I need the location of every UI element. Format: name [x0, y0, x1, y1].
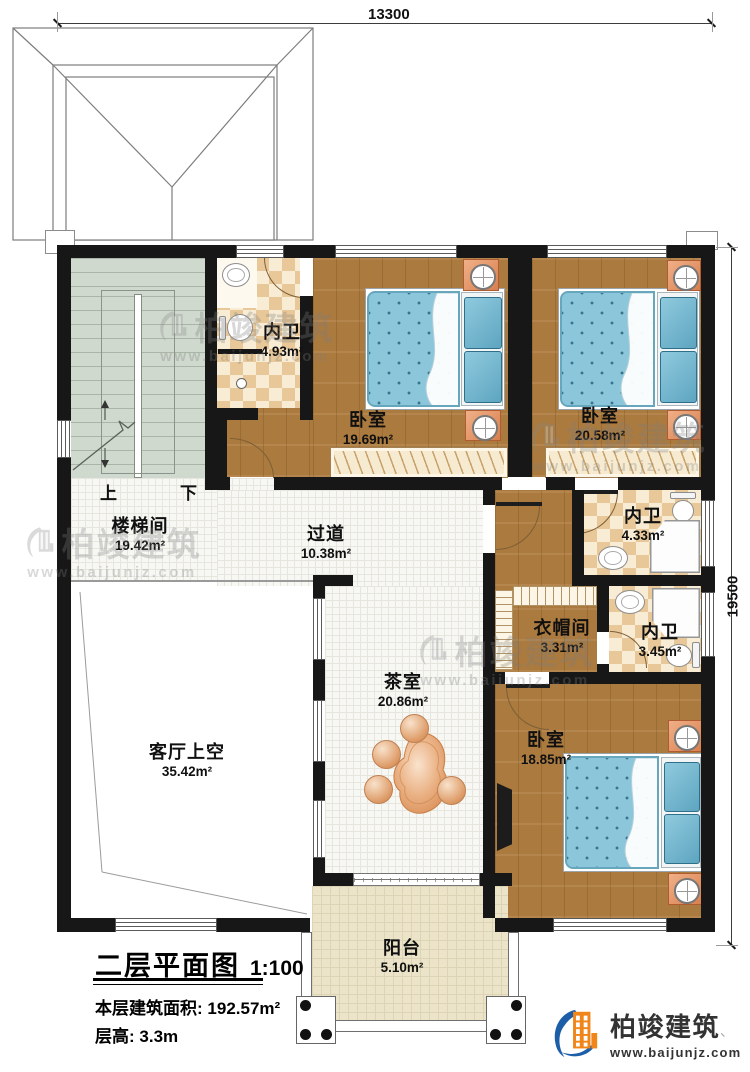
post-dot — [300, 1029, 311, 1040]
bath1-sink — [222, 263, 250, 287]
lamp-icon — [472, 415, 498, 441]
bedroom1-wardrobe — [330, 447, 508, 478]
wall-exterior-left — [57, 245, 71, 932]
lamp-icon — [674, 878, 700, 904]
window-bedroom1 — [335, 245, 457, 258]
roof-plan-drawing — [12, 26, 316, 242]
floor-height-row: 层高: 3.3m — [95, 1022, 178, 1047]
dimension-extension — [712, 12, 713, 32]
room-area: 4.33m² — [593, 528, 693, 544]
window-bath2 — [701, 500, 715, 567]
room-area: 3.45m² — [610, 644, 710, 660]
stair-direction-arrows — [71, 258, 205, 478]
room-area: 4.93m² — [234, 344, 330, 360]
room-label-bedroom2: 卧室 20.58m² — [550, 406, 650, 444]
bedroom1-pillow — [464, 297, 502, 349]
bath1-floor-drain — [236, 378, 247, 389]
stair-down-label: 下 — [180, 479, 197, 504]
wall-closet-south-a — [483, 672, 505, 684]
company-logo: 柏竣建筑、 www.baijunjz.com — [548, 1002, 744, 1064]
post-dot — [300, 1000, 311, 1011]
bedroom3-nightstand-bottom — [668, 873, 702, 905]
room-name: 阳台 — [352, 938, 452, 960]
window-bath1 — [236, 245, 284, 258]
bedroom3-mattress — [565, 756, 659, 869]
bedroom1-mattress — [367, 291, 460, 407]
room-label-bedroom1: 卧室 19.69m² — [318, 410, 418, 448]
post-dot — [511, 1029, 522, 1040]
room-name: 客厅上空 — [130, 742, 244, 764]
room-label-hallway: 过道 10.38m² — [276, 524, 376, 562]
room-label-bedroom3: 卧室 18.85m² — [496, 730, 596, 768]
lamp-icon — [673, 414, 699, 440]
bedroom2-pillow — [660, 351, 697, 403]
plan-title: 二层平面图 — [95, 951, 240, 981]
room-area: 20.86m² — [353, 694, 453, 710]
plan-scale: 1:100 — [250, 957, 304, 980]
bedroom1-nightstand-bottom — [465, 410, 501, 441]
company-name-tick: 、 — [720, 1023, 734, 1039]
room-label-balcony: 阳台 5.10m² — [352, 938, 452, 976]
window-living-void — [115, 918, 217, 932]
wall-tearoom-north-stub — [313, 575, 353, 586]
room-label-closet: 衣帽间 3.31m² — [512, 618, 612, 656]
bath1-toilet-tank — [219, 316, 226, 340]
balcony-sliding-door — [353, 873, 480, 886]
wall-tearoom-south-stub-left — [325, 873, 353, 886]
wall-bedroom1-bedroom2 — [508, 258, 532, 477]
bedroom3-nightstand-top — [668, 720, 702, 752]
dimension-height-label: 19500 — [724, 576, 741, 618]
floor-height-value: 3.3m — [139, 1027, 178, 1046]
bedroom3-pillow — [664, 762, 700, 812]
window-bedroom2 — [547, 245, 667, 258]
building-logo-icon — [23, 525, 57, 559]
room-label-bath3: 内卫 3.45m² — [610, 622, 710, 660]
wall-south-band-b — [274, 477, 502, 490]
room-area: 3.31m² — [512, 640, 612, 656]
bedroom3-pillow — [664, 814, 700, 864]
title-underline — [93, 978, 263, 981]
door-leaf-vestibule — [496, 502, 542, 506]
tea-stool — [437, 776, 466, 805]
room-label-stairhall: 楼梯间 19.42m² — [85, 516, 195, 554]
room-area: 10.38m² — [276, 546, 376, 562]
room-name: 卧室 — [496, 730, 596, 752]
company-website: www.baijunjz.com — [610, 1045, 741, 1060]
room-label-living-void: 客厅上空 35.42m² — [130, 742, 244, 780]
room-area: 35.42m² — [130, 764, 244, 780]
company-logo-text: 柏竣建筑、 www.baijunjz.com — [610, 1007, 741, 1060]
floor-plan-canvas: 13300 19500 上 下 — [0, 0, 750, 1072]
floor-area-value: 192.57m² — [207, 999, 280, 1018]
tea-stool — [400, 714, 429, 743]
dimension-line-top — [57, 23, 712, 24]
floor-area-label: 本层建筑面积: — [95, 999, 203, 1018]
dimension-extension — [716, 945, 738, 946]
bedroom2-pillow — [660, 297, 697, 349]
title-underline-thin — [93, 984, 263, 985]
lamp-icon — [470, 264, 496, 290]
wall-south-band-d — [618, 477, 715, 490]
dimension-width-label: 13300 — [368, 6, 410, 23]
wall-vestibule-west-b — [483, 553, 495, 672]
wall-south-band-a — [205, 477, 230, 490]
door-leaf-bedroom3 — [506, 684, 550, 688]
room-name: 茶室 — [353, 672, 453, 694]
window-tearoom-1 — [313, 598, 325, 660]
room-area: 5.10m² — [352, 960, 452, 976]
wall-bath2-south — [572, 575, 715, 586]
window-tearoom-2 — [313, 700, 325, 762]
bath3-sink — [615, 590, 645, 614]
post-dot — [490, 1029, 501, 1040]
bedroom2-wardrobe — [545, 447, 700, 478]
lamp-icon — [674, 725, 700, 751]
bedroom1-nightstand-top — [463, 259, 499, 291]
window-stairwell — [57, 420, 71, 458]
stair-up-label: 上 — [100, 479, 117, 504]
post-dot — [321, 1029, 332, 1040]
lamp-icon — [673, 265, 699, 291]
dimension-extension — [57, 12, 58, 32]
company-name: 柏竣建筑 — [610, 1012, 720, 1042]
window-bedroom3 — [553, 918, 667, 932]
wall-exterior-right — [701, 245, 715, 932]
room-name: 过道 — [276, 524, 376, 546]
wall-vestibule-west-a — [483, 490, 495, 505]
room-name: 衣帽间 — [512, 618, 612, 640]
bed-curtain — [367, 293, 460, 407]
balcony-post-right — [486, 996, 526, 1044]
floor-height-label: 层高: — [95, 1027, 135, 1046]
room-area: 19.69m² — [318, 432, 418, 448]
wall-south-band-c — [546, 477, 575, 490]
bed-curtain — [560, 293, 655, 407]
balcony-post-left — [296, 996, 336, 1044]
wall-stair-bath1 — [205, 258, 217, 408]
void-railing-line — [71, 580, 313, 582]
wall-bath2-west — [572, 490, 584, 575]
room-name: 内卫 — [593, 506, 693, 528]
bedroom3-tv — [497, 783, 512, 851]
company-logo-icon — [548, 1005, 602, 1061]
bedroom2-nightstand-bottom — [667, 410, 701, 440]
room-name: 楼梯间 — [85, 516, 195, 538]
room-area: 18.85m² — [496, 752, 596, 768]
dimension-extension — [716, 247, 738, 248]
bedroom2-nightstand-top — [667, 260, 701, 291]
tea-stool — [372, 740, 401, 769]
room-name: 内卫 — [234, 322, 330, 344]
room-area: 20.58m² — [550, 428, 650, 444]
room-area: 19.42m² — [85, 538, 195, 554]
wall-tearoom-south-stub-right — [480, 873, 512, 886]
wall-closet-south-b — [549, 672, 715, 684]
bath2-toilet-tank — [670, 492, 696, 499]
wall-bath1-south — [217, 408, 258, 420]
floor-area-row: 本层建筑面积: 192.57m² — [95, 994, 280, 1019]
bedroom2-mattress — [560, 291, 655, 407]
wall-closet-bath3-b — [597, 664, 609, 672]
closet-rack-left — [495, 590, 513, 670]
room-label-bath1: 内卫 4.93m² — [234, 322, 330, 360]
bed-curtain — [565, 758, 659, 869]
window-tearoom-3 — [313, 800, 325, 858]
bedroom1-pillow — [464, 351, 502, 403]
room-label-bath2: 内卫 4.33m² — [593, 506, 693, 544]
closet-rack-top — [513, 586, 597, 606]
room-name: 卧室 — [318, 410, 418, 432]
room-name: 卧室 — [550, 406, 650, 428]
room-label-tearoom: 茶室 20.86m² — [353, 672, 453, 710]
bath2-sink — [598, 546, 628, 570]
room-name: 内卫 — [610, 622, 710, 644]
post-dot — [511, 1000, 522, 1011]
tea-stool — [364, 775, 393, 804]
